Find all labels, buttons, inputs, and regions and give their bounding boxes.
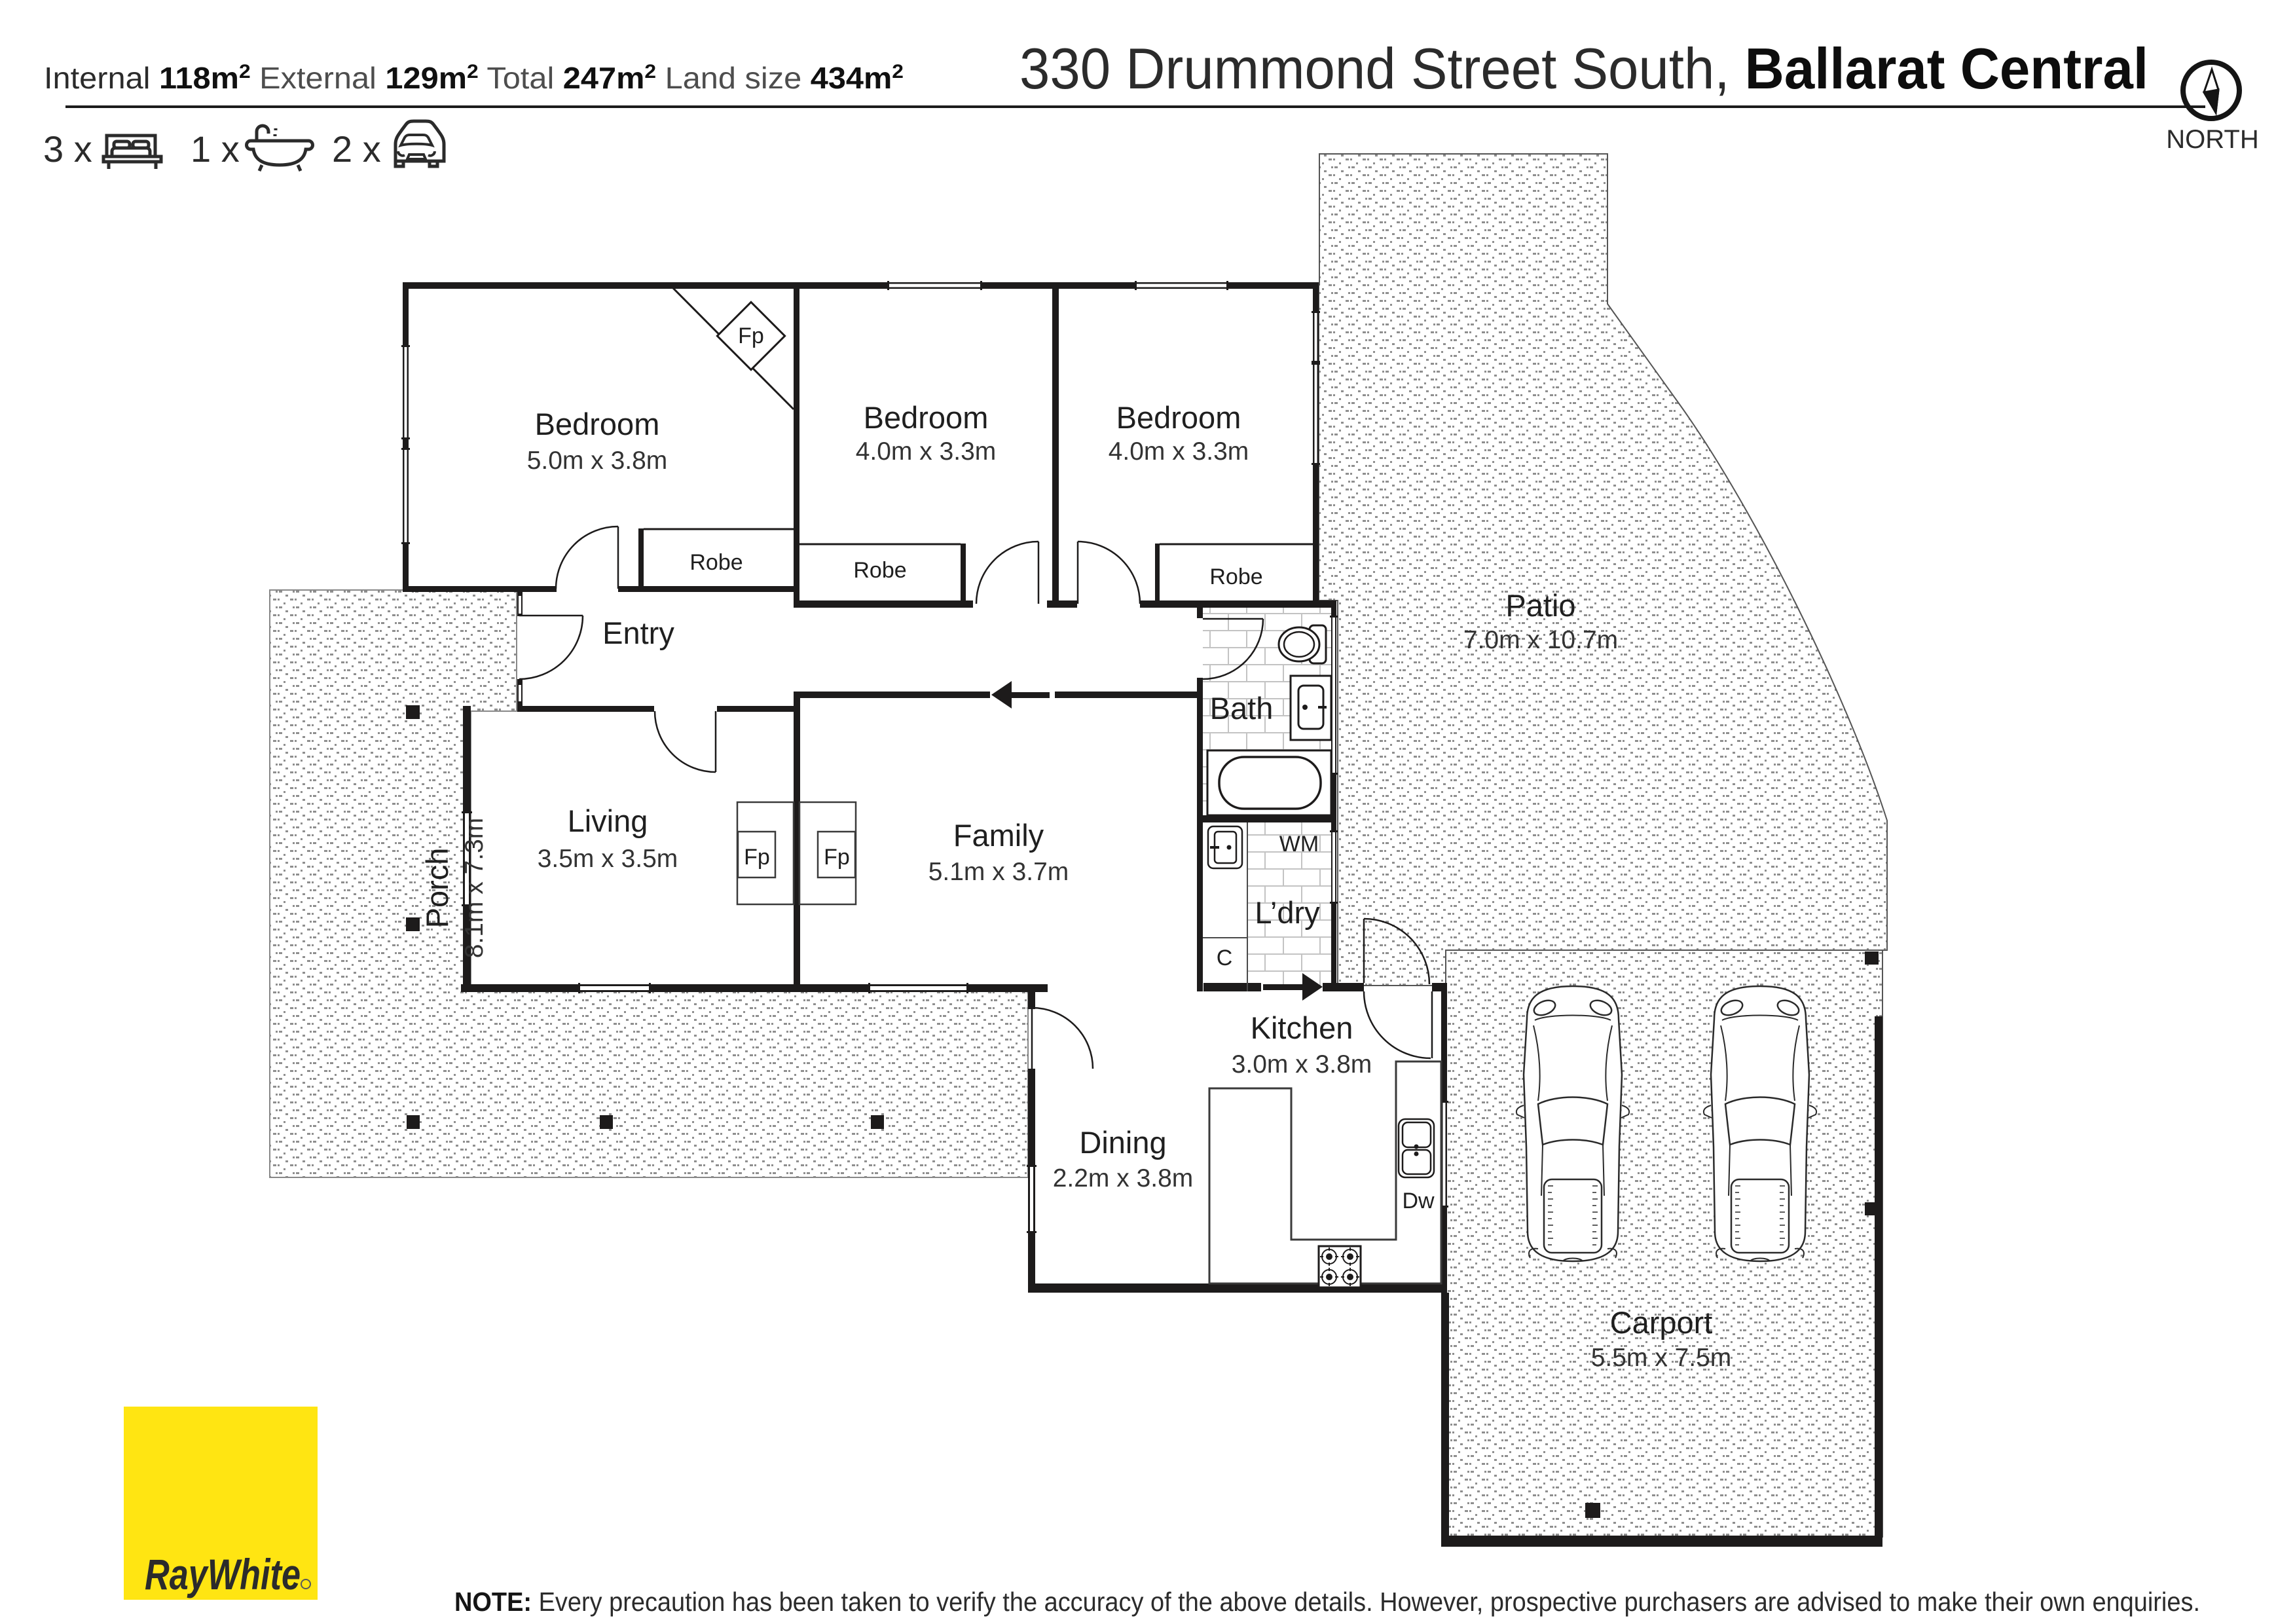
svg-text:Dw: Dw bbox=[1402, 1189, 1435, 1213]
svg-text:Robe: Robe bbox=[853, 558, 906, 583]
svg-text:Porch: Porch bbox=[420, 848, 454, 929]
svg-text:NORTH: NORTH bbox=[2166, 125, 2258, 154]
svg-text:2.2m x 3.8m: 2.2m x 3.8m bbox=[1053, 1164, 1194, 1192]
svg-text:Carport: Carport bbox=[1610, 1305, 1713, 1340]
svg-text:3.5m x 3.5m: 3.5m x 3.5m bbox=[538, 845, 678, 873]
svg-text:C: C bbox=[1217, 946, 1233, 970]
svg-text:2 x: 2 x bbox=[332, 128, 381, 170]
svg-text:7.0m x 10.7m: 7.0m x 10.7m bbox=[1463, 626, 1618, 654]
svg-text:Bedroom: Bedroom bbox=[864, 400, 989, 435]
svg-text:4.0m x 3.3m: 4.0m x 3.3m bbox=[1109, 437, 1249, 466]
svg-text:1 x: 1 x bbox=[191, 128, 240, 170]
svg-text:Patio: Patio bbox=[1505, 588, 1575, 623]
svg-text:Family: Family bbox=[953, 818, 1044, 853]
svg-text:L’dry: L’dry bbox=[1255, 895, 1320, 930]
svg-text:Kitchen: Kitchen bbox=[1251, 1010, 1353, 1045]
svg-text:3.0m x 3.8m: 3.0m x 3.8m bbox=[1232, 1050, 1372, 1079]
svg-text:8.1m x 7.3m: 8.1m x 7.3m bbox=[460, 818, 488, 959]
svg-text:5.0m x 3.8m: 5.0m x 3.8m bbox=[527, 447, 668, 475]
svg-text:NOTE: Every precaution has bee: NOTE: Every precaution has been taken to… bbox=[454, 1587, 2200, 1617]
svg-text:Fp: Fp bbox=[744, 845, 770, 870]
svg-text:Robe: Robe bbox=[1209, 564, 1262, 589]
svg-text:Bedroom: Bedroom bbox=[1116, 400, 1241, 435]
svg-text:Fp: Fp bbox=[824, 845, 850, 870]
svg-text:WM: WM bbox=[1279, 832, 1319, 857]
svg-text:5.1m x 3.7m: 5.1m x 3.7m bbox=[928, 858, 1069, 886]
svg-text:330 Drummond Street South, Bal: 330 Drummond Street South, Ballarat Cent… bbox=[1019, 36, 2148, 101]
svg-text:4.0m x 3.3m: 4.0m x 3.3m bbox=[856, 437, 997, 466]
svg-text:3 x: 3 x bbox=[43, 128, 92, 170]
svg-text:RayWhite: RayWhite bbox=[145, 1550, 301, 1598]
svg-text:Bath: Bath bbox=[1210, 691, 1274, 726]
svg-text:Entry: Entry bbox=[602, 616, 674, 650]
svg-text:5.5m x 7.5m: 5.5m x 7.5m bbox=[1591, 1344, 1732, 1372]
svg-text:Dining: Dining bbox=[1079, 1125, 1166, 1160]
svg-text:Bedroom: Bedroom bbox=[535, 407, 660, 441]
svg-text:Fp: Fp bbox=[738, 323, 764, 348]
svg-text:Robe: Robe bbox=[689, 550, 743, 575]
svg-text:Living: Living bbox=[568, 803, 648, 838]
